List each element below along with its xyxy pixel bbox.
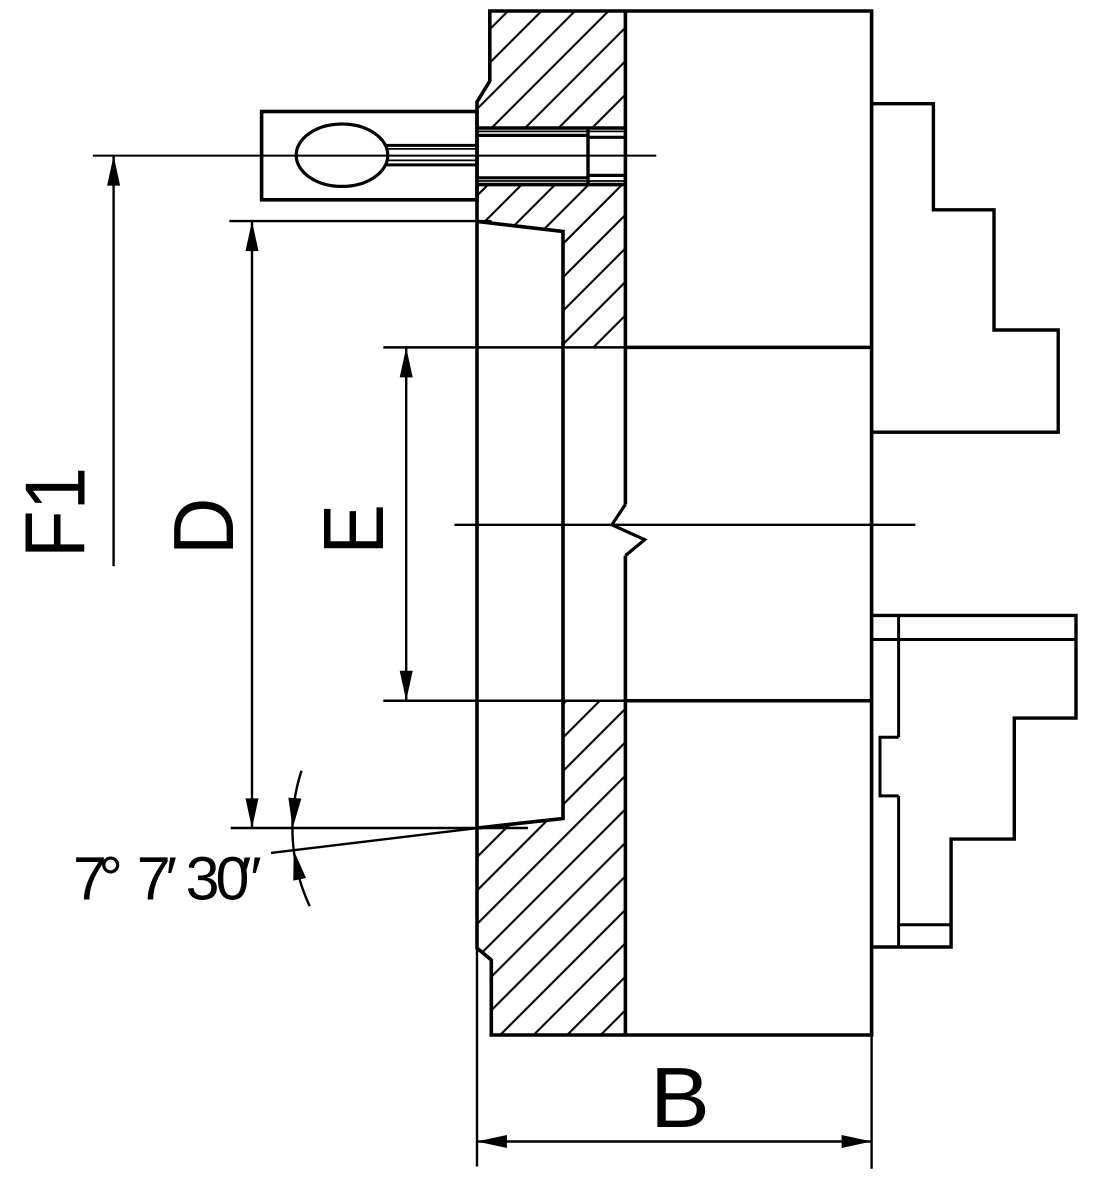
svg-text:F1: F1 bbox=[8, 467, 103, 558]
svg-text:7°7′30″: 7°7′30″ bbox=[73, 845, 262, 913]
svg-text:E: E bbox=[307, 504, 402, 554]
svg-text:D: D bbox=[158, 498, 252, 555]
svg-text:B: B bbox=[650, 1050, 710, 1145]
